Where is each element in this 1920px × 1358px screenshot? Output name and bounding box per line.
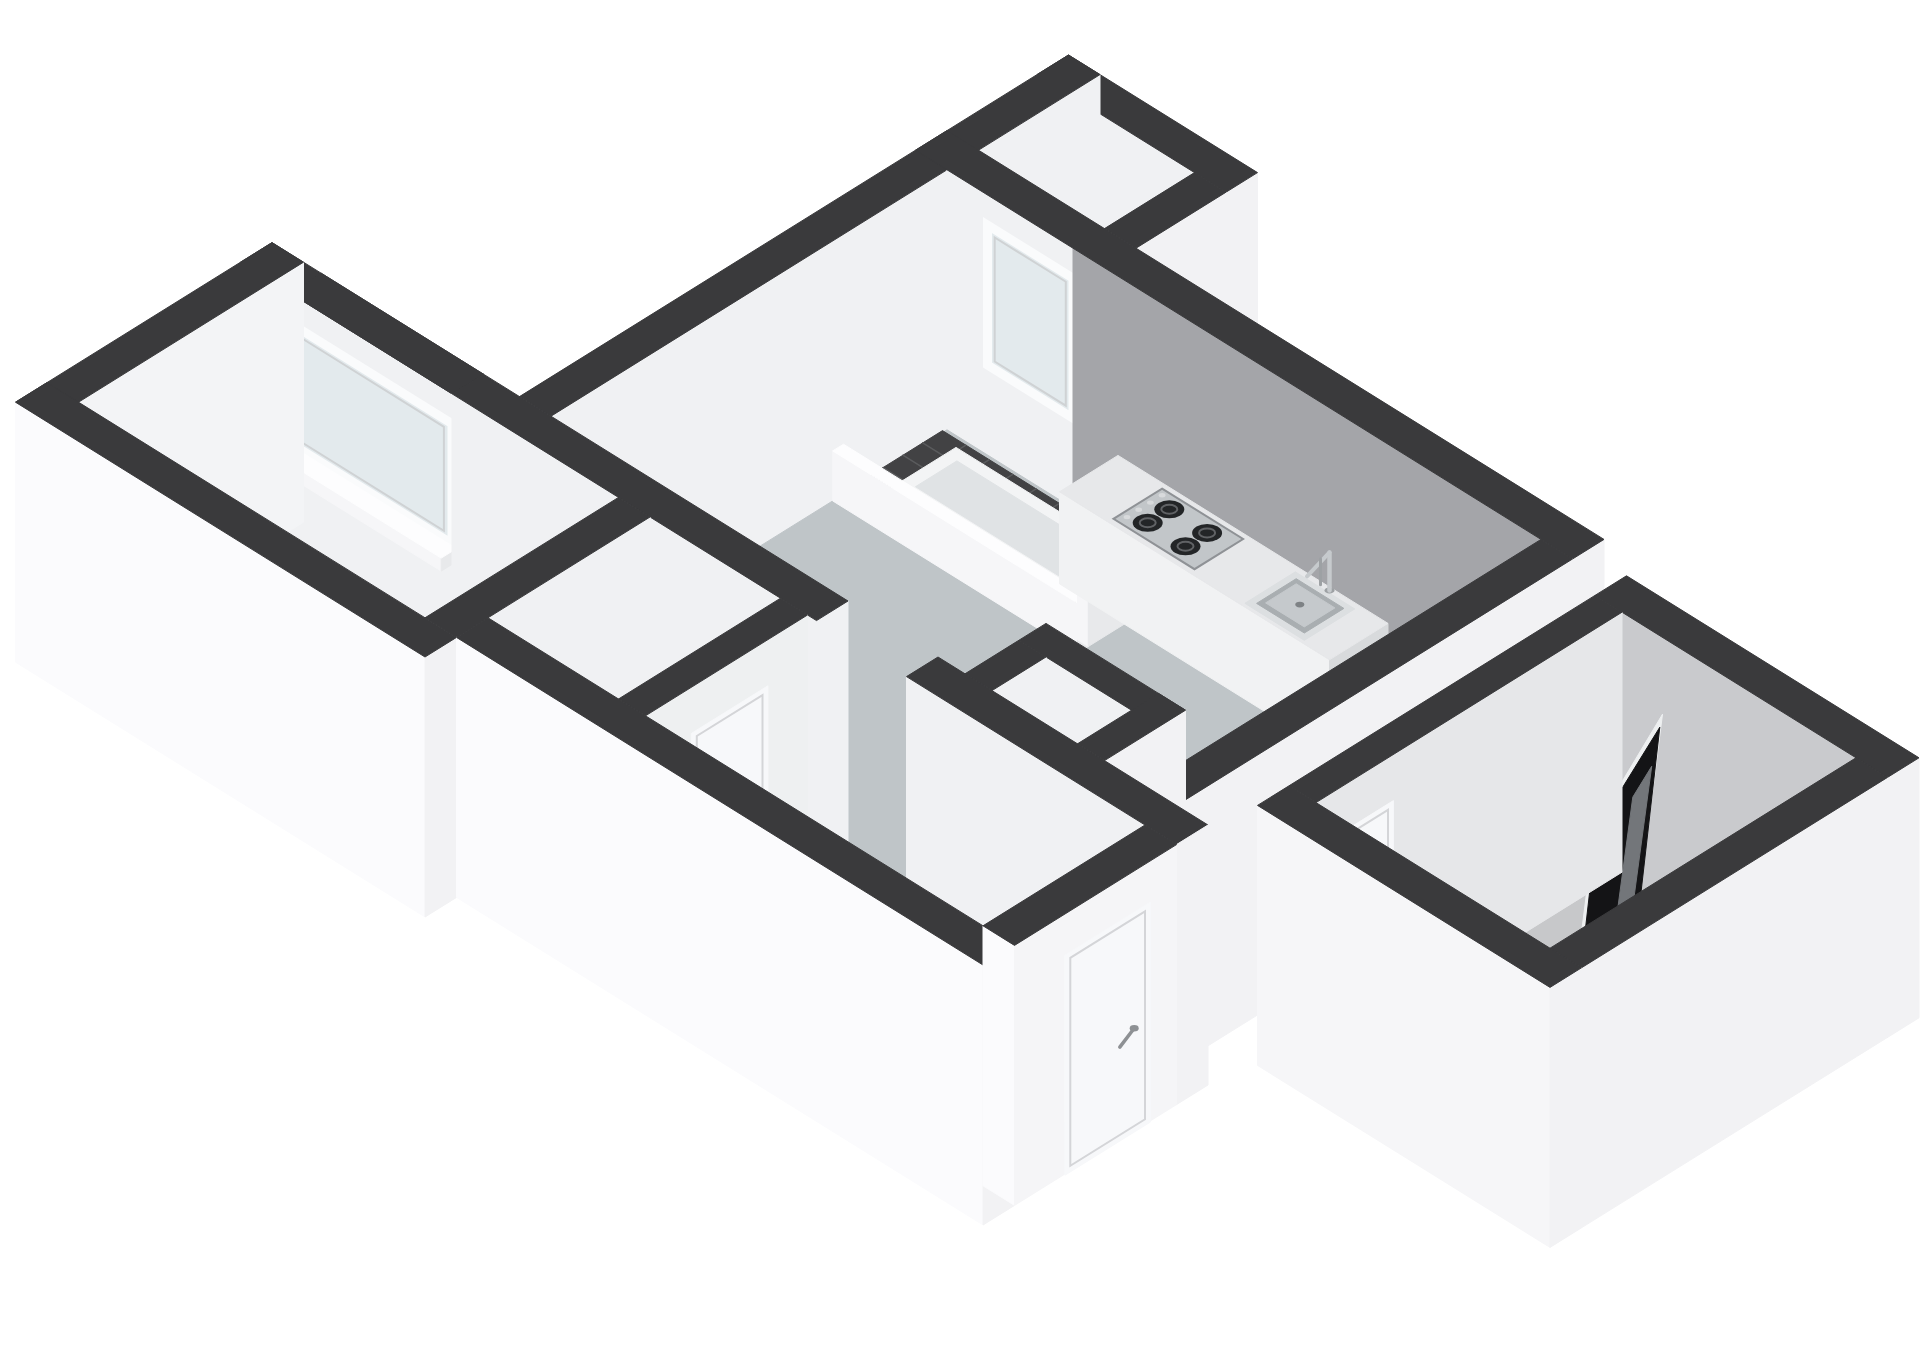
kitchen-sink-drain bbox=[1295, 602, 1304, 608]
hob-burner bbox=[1133, 514, 1163, 532]
hob-knob bbox=[1124, 515, 1131, 519]
bathroom-south-wall-se-face bbox=[1550, 968, 1582, 1248]
hob-knob bbox=[1147, 500, 1154, 504]
band-end-cap bbox=[1177, 825, 1209, 1105]
bathroom-north-wall-se-face bbox=[1888, 758, 1920, 1038]
hob-knob bbox=[1159, 493, 1166, 497]
north-wall-seg-a-sw-face bbox=[947, 170, 988, 455]
bedroom-south-wall-se-face bbox=[425, 637, 457, 917]
hob-burner bbox=[1171, 537, 1201, 555]
hob-burner bbox=[1154, 500, 1184, 518]
hob-burner bbox=[1192, 524, 1222, 542]
isometric-floor-plan-render bbox=[0, 0, 1920, 1358]
hall-east-wall-sw-face bbox=[983, 926, 1015, 1206]
floor-plan-stage bbox=[0, 0, 1920, 1358]
hob-knob bbox=[1135, 508, 1142, 512]
